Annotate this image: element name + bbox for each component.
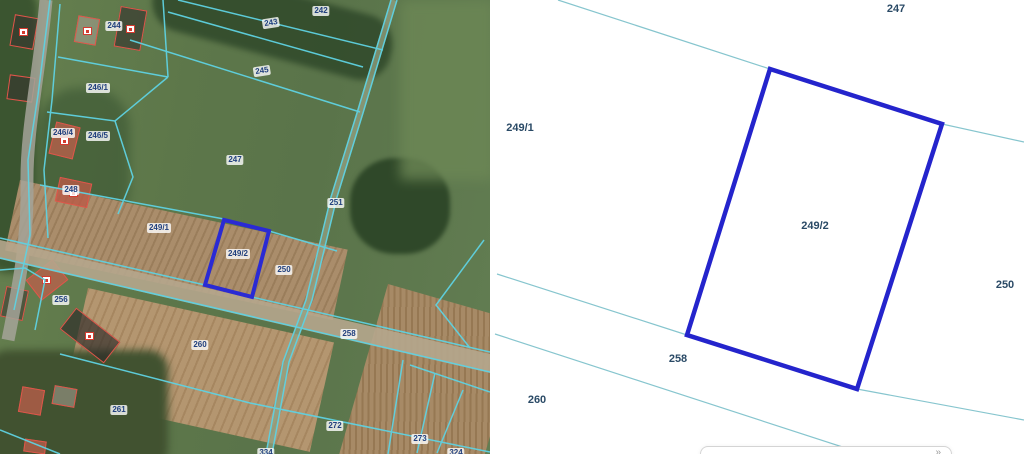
- building-label-marker: [60, 137, 69, 145]
- building: [18, 386, 45, 416]
- vector-label-247: 247: [887, 3, 905, 15]
- parcel-label-249-1: 249/1: [147, 223, 171, 233]
- trees-top-strip: [146, 0, 400, 87]
- vector-label-249-2: 249/2: [801, 220, 829, 232]
- expand-chevron-icon[interactable]: »: [935, 448, 941, 454]
- building-label-marker: [126, 25, 135, 33]
- vector-label-250: 250: [996, 279, 1014, 291]
- parcel-label-256: 256: [52, 295, 69, 305]
- parcel-label-242: 242: [312, 6, 329, 16]
- parcel-label-272: 272: [326, 421, 343, 431]
- parcel-label-251: 251: [327, 198, 344, 208]
- building: [0, 286, 29, 321]
- brown-strips-bottom-right: [330, 284, 490, 454]
- parcel-label-260: 260: [191, 340, 208, 350]
- parcel-label-334-partial: 334: [257, 448, 274, 454]
- parcel-label-273: 273: [411, 434, 428, 444]
- building-label-marker: [19, 28, 28, 36]
- collapsed-bottom-panel[interactable]: »: [700, 446, 952, 454]
- parcel-label-261: 261: [110, 405, 127, 415]
- building-label-marker: [85, 332, 94, 340]
- building: [23, 439, 47, 454]
- parcel-label-246-1: 246/1: [86, 83, 110, 93]
- building: [52, 385, 78, 408]
- vector-label-258: 258: [669, 353, 687, 365]
- building: [6, 74, 35, 102]
- parcel-label-246-5: 246/5: [86, 131, 110, 141]
- parcel-label-245: 245: [253, 65, 272, 78]
- pale-grass-top-right: [400, 0, 490, 180]
- parcel-label-324-partial: 324: [447, 448, 464, 454]
- map-viewer: 244 243 242 245 246/1 246/4 246/5 248 24…: [0, 0, 1024, 454]
- aerial-map-panel[interactable]: 244 243 242 245 246/1 246/4 246/5 248 24…: [0, 0, 490, 454]
- parcel-label-246-4: 246/4: [51, 128, 75, 138]
- building-label-marker: [42, 276, 51, 284]
- vector-label-260: 260: [528, 394, 546, 406]
- parcel-label-258: 258: [340, 329, 357, 339]
- vector-map-panel[interactable]: 247 249/1 249/2 250 258 260 »: [490, 0, 1024, 454]
- building-label-marker: [83, 27, 92, 35]
- vector-lines-overlay: [490, 0, 1024, 454]
- parcel-label-250: 250: [275, 265, 292, 275]
- parcel-label-244: 244: [105, 21, 122, 31]
- vector-label-249-1: 249/1: [506, 122, 534, 134]
- parcel-label-248: 248: [62, 185, 79, 195]
- parcel-label-247: 247: [226, 155, 243, 165]
- parcel-label-249-2: 249/2: [226, 249, 250, 259]
